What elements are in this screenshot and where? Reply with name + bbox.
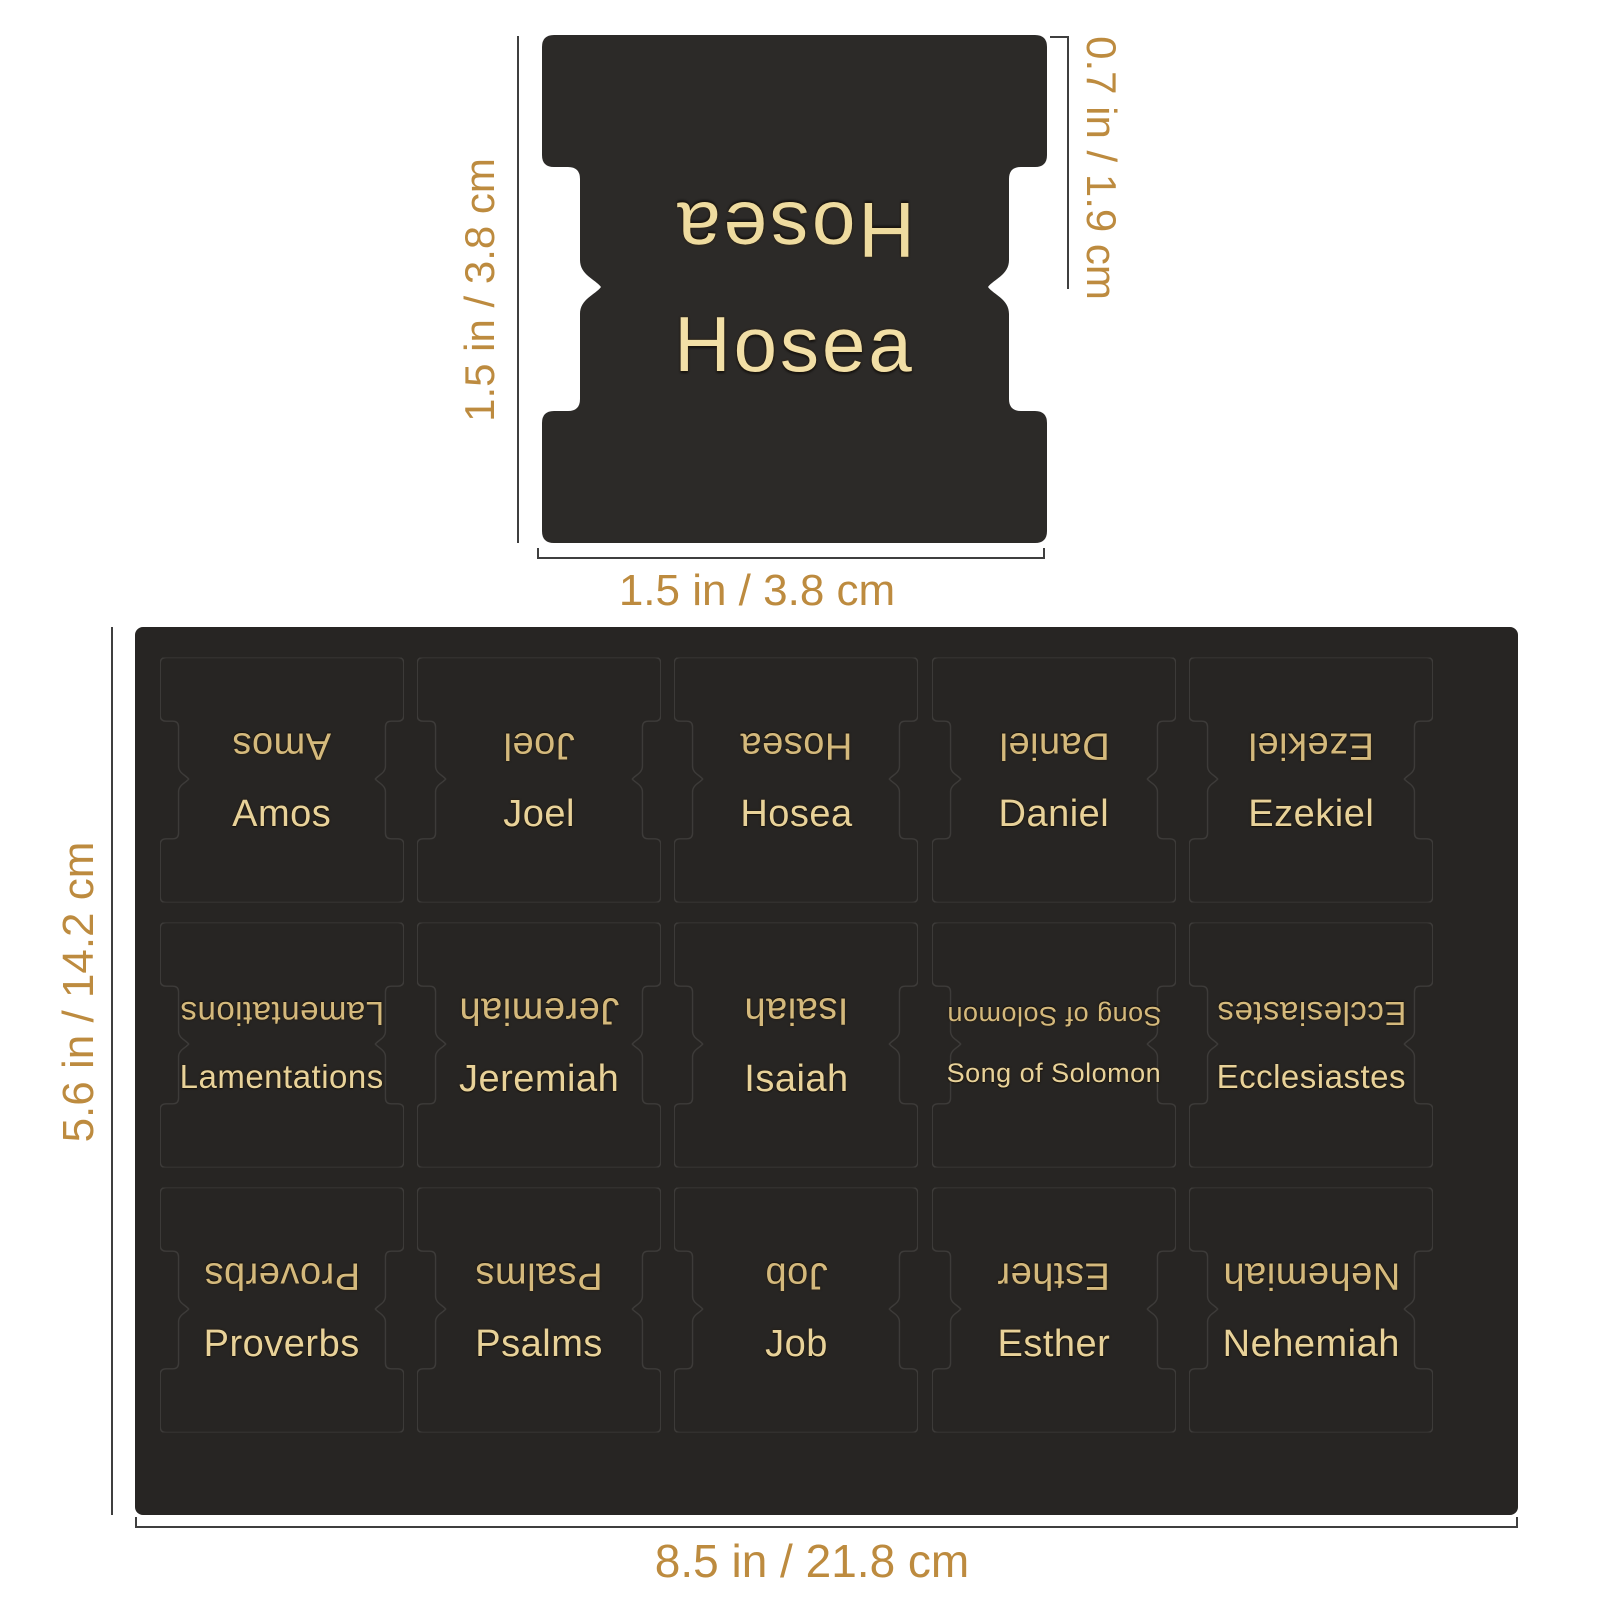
tab-label-mirrored: Daniel [999,723,1110,767]
die-cut-outline [932,657,1176,902]
die-cut-outline [932,922,1176,1167]
die-cut-outline [160,922,404,1167]
tab-label-mirrored: Esther [997,1253,1110,1297]
die-cut-outline [160,1187,404,1432]
sheet-tab-nehemiah: Nehemiah Nehemiah [1183,1177,1440,1442]
tab-label-mirrored: Ecclesiastes [1217,994,1406,1032]
die-cut-outline [1189,657,1433,902]
tab-label-mirrored: Joel [503,723,575,767]
sheet-tab-lamentations: Lamentations Lamentations [153,912,410,1177]
sheet-tab-joel: Joel Joel [410,647,667,912]
sheet-width-dim-line [135,1526,1518,1528]
sheet-tab-song-of-solomon: Song of Solomon Song of Solomon [925,912,1182,1177]
die-cut-outline [674,1187,918,1432]
tab-label-mirrored: Amos [232,723,331,767]
tab-width-dim-line [537,557,1045,559]
tab-label-mirrored: Isaiah [744,988,848,1032]
sheet-tab-daniel: Daniel Daniel [925,647,1182,912]
tab-label-mirrored: Nehemiah [1223,1253,1400,1297]
die-cut-outline [417,922,661,1167]
sheet-tab-amos: Amos Amos [153,647,410,912]
sheet-height-dim-label: 5.6 in / 14.2 cm [54,842,104,1143]
tab-sheet: Amos Amos Joel Joel Hosea Hosea Daniel D… [135,627,1518,1515]
tab-label-mirrored: Psalms [475,1253,603,1297]
sheet-tab-job: Job Job [668,1177,925,1442]
die-cut-outline [160,657,404,902]
tab-text: Hosea [542,301,1047,387]
die-cut-outline [1189,1187,1433,1432]
sheet-tab-proverbs: Proverbs Proverbs [153,1177,410,1442]
index-tab-shape [542,35,1047,543]
tab-label-mirrored: Jeremiah [459,988,619,1032]
tab-height-dim-line [517,36,519,543]
die-cut-outline [417,657,661,902]
die-cut-outline [674,657,918,902]
tab-height-dim-label: 1.5 in / 3.8 cm [456,158,504,422]
sheet-tab-psalms: Psalms Psalms [410,1177,667,1442]
sheet-tab-jeremiah: Jeremiah Jeremiah [410,912,667,1177]
tab-label-mirrored: Hosea [740,723,852,767]
tab-label-mirrored: Song of Solomon [947,1000,1162,1031]
tab-label-mirrored: Lamentations [180,994,384,1032]
tab-width-dim-label: 1.5 in / 3.8 cm [619,566,895,616]
die-cut-outline [417,1187,661,1432]
product-photo: Hosea Hosea 1.5 in / 3.8 cm 0.7 in / 1.9… [0,0,1600,1600]
sheet-tab-ezekiel: Ezekiel Ezekiel [1183,647,1440,912]
sheet-tab-ecclesiastes: Ecclesiastes Ecclesiastes [1183,912,1440,1177]
tab-label-mirrored: Job [765,1253,828,1297]
tab-half-height-dim-label: 0.7 in / 1.9 cm [1077,36,1125,300]
die-cut-outline [1189,922,1433,1167]
index-tab-sample: Hosea Hosea [542,35,1047,543]
tab-label-mirrored: Ezekiel [1248,723,1374,767]
sheet-width-dim-label: 8.5 in / 21.8 cm [655,1534,970,1588]
sheet-height-dim-line [111,627,113,1515]
sheet-tab-isaiah: Isaiah Isaiah [668,912,925,1177]
tab-label-mirrored: Proverbs [204,1253,360,1297]
sheet-tab-esther: Esther Esther [925,1177,1182,1442]
die-cut-outline [932,1187,1176,1432]
die-cut-outline [674,922,918,1167]
tab-text-mirrored: Hosea [542,187,1047,273]
tab-half-height-dim-line [1067,37,1069,289]
sheet-tab-hosea: Hosea Hosea [668,647,925,912]
